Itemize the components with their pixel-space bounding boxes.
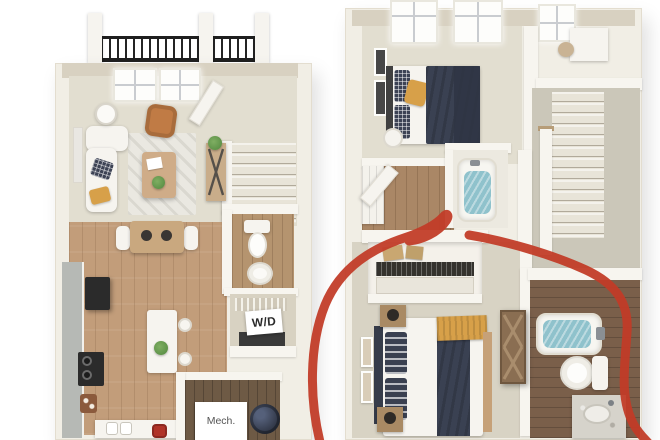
closet-box xyxy=(382,245,404,262)
nightstand-decor xyxy=(384,412,396,424)
rear-bed-bench xyxy=(483,332,492,432)
tub-faucet xyxy=(470,160,480,166)
tub-faucet xyxy=(596,327,605,340)
closet-box xyxy=(405,245,423,260)
wall-art xyxy=(361,371,373,403)
wall xyxy=(528,268,642,280)
rear-bed-runner xyxy=(437,330,470,436)
rear-bed-throw-blanket xyxy=(437,315,488,341)
closet-front-wall xyxy=(368,294,482,303)
wall xyxy=(518,150,532,280)
closet-hanging-rod xyxy=(376,262,474,276)
closet-drawers xyxy=(376,277,474,294)
front-bed-duvet-fold xyxy=(454,66,480,144)
barn-door-x-brace xyxy=(502,312,524,382)
nightstand-decor xyxy=(387,309,399,321)
rear-bathtub-water xyxy=(543,320,591,348)
rear-toilet-bowl xyxy=(560,356,594,390)
wall-art xyxy=(361,337,373,367)
desk-chair xyxy=(558,42,574,57)
hall-bathtub-water xyxy=(464,171,491,214)
front-nightstand xyxy=(383,128,403,148)
stairs-up xyxy=(552,92,604,238)
barn-door xyxy=(500,310,526,384)
rear-bed-pillow xyxy=(385,332,407,374)
floorplan-second-floor xyxy=(0,0,660,440)
sink-faucet xyxy=(608,400,614,406)
desk xyxy=(570,28,608,61)
stair-railing-wall xyxy=(540,129,552,255)
rear-toilet-tank xyxy=(592,356,608,390)
front-bedroom-window xyxy=(390,0,438,44)
front-bedroom-window xyxy=(453,0,503,44)
vanity-sink xyxy=(583,404,611,424)
floorplan-screenshot: W/D Mech. xyxy=(0,0,660,440)
